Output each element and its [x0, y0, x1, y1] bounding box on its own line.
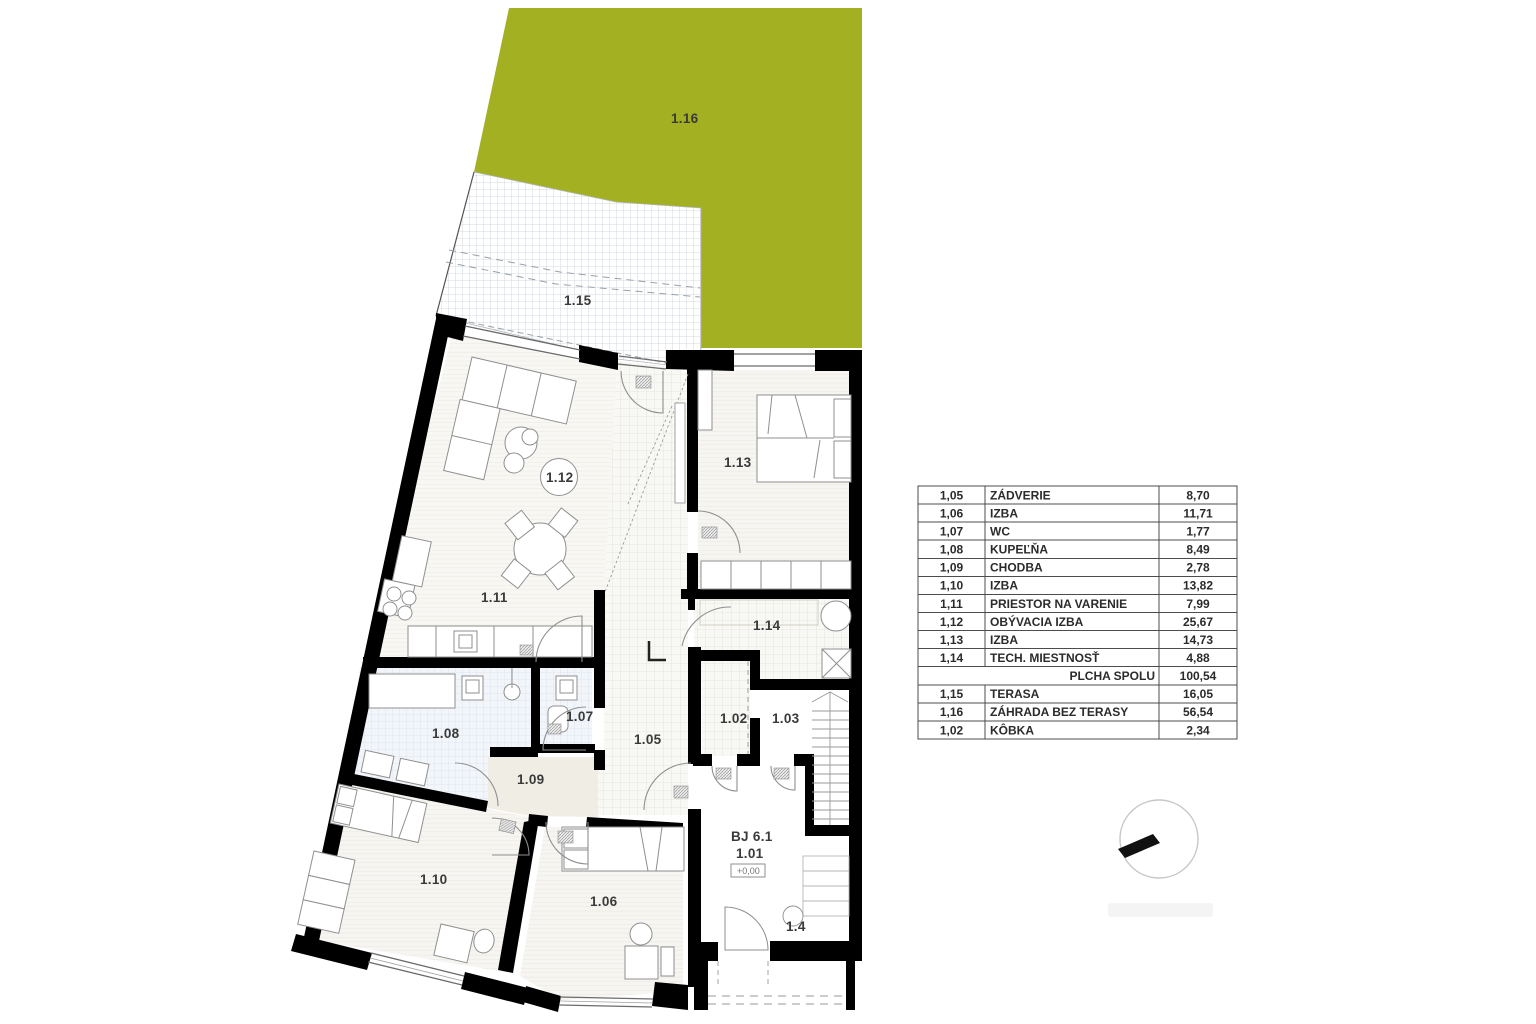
svg-text:TECH. MIESTNOSŤ: TECH. MIESTNOSŤ	[990, 650, 1100, 665]
svg-text:1,12: 1,12	[940, 615, 964, 629]
svg-text:8,70: 8,70	[1186, 488, 1210, 502]
svg-text:1,15: 1,15	[940, 687, 964, 701]
svg-text:1,08: 1,08	[940, 543, 964, 557]
svg-text:25,67: 25,67	[1183, 615, 1213, 629]
svg-text:OBÝVACIA IZBA: OBÝVACIA IZBA	[990, 614, 1084, 629]
svg-text:1.09: 1.09	[517, 772, 544, 787]
svg-text:14,73: 14,73	[1183, 633, 1213, 647]
svg-text:WC: WC	[990, 525, 1010, 539]
svg-text:1,10: 1,10	[940, 579, 964, 593]
svg-text:8,49: 8,49	[1186, 543, 1210, 557]
svg-text:TERASA: TERASA	[990, 687, 1040, 701]
svg-text:1,05: 1,05	[940, 488, 964, 502]
svg-text:KÔBKA: KÔBKA	[990, 722, 1034, 737]
svg-text:IZBA: IZBA	[990, 579, 1018, 593]
svg-text:1,16: 1,16	[940, 705, 964, 719]
svg-text:1.4: 1.4	[786, 919, 806, 934]
svg-text:1.15: 1.15	[564, 293, 592, 308]
svg-text:PRIESTOR NA VARENIE: PRIESTOR NA VARENIE	[990, 597, 1127, 611]
svg-text:1.08: 1.08	[432, 726, 460, 741]
svg-text:1.05: 1.05	[634, 732, 662, 747]
svg-text:1.02: 1.02	[720, 711, 747, 726]
svg-text:ZÁHRADA BEZ TERASY: ZÁHRADA BEZ TERASY	[990, 704, 1128, 719]
svg-text:1,11: 1,11	[940, 597, 963, 611]
svg-text:KUPEĽŇA: KUPEĽŇA	[990, 542, 1048, 557]
svg-text:1,14: 1,14	[940, 651, 964, 665]
svg-text:7,99: 7,99	[1186, 597, 1210, 611]
svg-text:1,07: 1,07	[940, 525, 964, 539]
svg-text:13,82: 13,82	[1183, 579, 1213, 593]
svg-text:1,13: 1,13	[940, 633, 964, 647]
svg-text:1,77: 1,77	[1186, 525, 1210, 539]
svg-text:ZÁDVERIE: ZÁDVERIE	[990, 487, 1051, 502]
svg-text:PLCHA SPOLU: PLCHA SPOLU	[1069, 669, 1155, 683]
svg-text:11,71: 11,71	[1183, 506, 1213, 520]
svg-text:1.01: 1.01	[736, 846, 764, 861]
svg-text:+0,00: +0,00	[737, 866, 760, 876]
svg-text:2,78: 2,78	[1186, 561, 1210, 575]
svg-text:1.12: 1.12	[546, 470, 573, 485]
svg-text:1,02: 1,02	[940, 723, 964, 737]
svg-text:1.13: 1.13	[724, 455, 752, 470]
svg-text:CHODBA: CHODBA	[990, 561, 1043, 575]
svg-text:IZBA: IZBA	[990, 506, 1018, 520]
svg-text:1.06: 1.06	[590, 894, 618, 909]
svg-text:IZBA: IZBA	[990, 633, 1018, 647]
svg-text:1.16: 1.16	[671, 111, 699, 126]
svg-text:1.11: 1.11	[481, 590, 508, 605]
svg-text:16,05: 16,05	[1183, 687, 1213, 701]
svg-text:BJ 6.1: BJ 6.1	[731, 829, 773, 844]
svg-text:100,54: 100,54	[1180, 669, 1217, 683]
svg-text:1.03: 1.03	[772, 711, 800, 726]
svg-text:4,88: 4,88	[1186, 651, 1210, 665]
svg-text:1.10: 1.10	[420, 872, 447, 887]
svg-text:1,06: 1,06	[940, 506, 964, 520]
svg-text:1,09: 1,09	[940, 561, 964, 575]
svg-text:2,34: 2,34	[1186, 723, 1210, 737]
svg-text:1.07: 1.07	[566, 709, 593, 724]
svg-text:1.14: 1.14	[753, 618, 781, 633]
svg-text:56,54: 56,54	[1183, 705, 1213, 719]
